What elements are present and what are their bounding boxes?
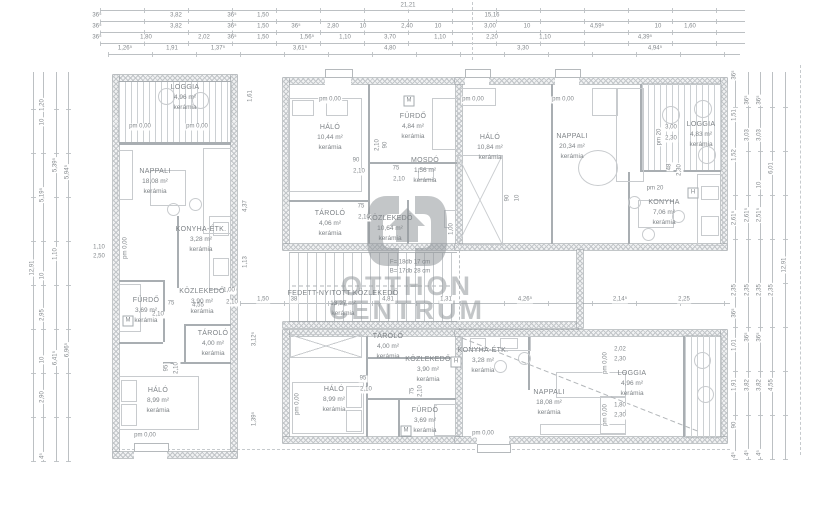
room-label: KONYHA-ÉTK.3,28 m²kerámia — [176, 226, 227, 253]
dimension-label: 3,00 — [664, 125, 678, 132]
dimension-label: 3,30 — [516, 46, 530, 53]
stair-note: B= 17db 28 cm — [389, 269, 432, 276]
partition — [119, 142, 231, 145]
room-label: TÁROLÓ4,00 m²kerámia — [198, 330, 229, 357]
top-dim-line — [108, 52, 740, 57]
dimension-label: 2,30 — [613, 357, 627, 364]
room-finish: kerámia — [687, 141, 716, 148]
room-finish: kerámia — [146, 407, 169, 414]
dimension-label: 2,50 — [92, 254, 106, 261]
room-area: 8,99 m² — [322, 396, 345, 403]
dimension-label: 75 — [357, 204, 366, 211]
room-name: FÜRDŐ — [412, 407, 438, 414]
dimension-label: 2,35 — [769, 283, 776, 297]
dimension-label: 2,35 — [732, 283, 739, 297]
room-finish: kerámia — [400, 133, 426, 140]
dimension-label: 4,94⁵ — [647, 46, 663, 53]
dimension-label: 2,10 — [392, 177, 406, 184]
dimension-label: 1,50 — [256, 13, 270, 20]
top-dim-line — [100, 19, 745, 24]
dimension-label: 2,90 — [40, 390, 47, 404]
level-label: pm 0,00 — [461, 97, 485, 104]
level-label: pm 0,00 — [133, 433, 157, 440]
dimension-label: 4,26⁵ — [517, 297, 533, 304]
room-finish: kerámia — [315, 230, 346, 237]
room-finish: kerámia — [405, 376, 451, 383]
sink — [701, 186, 719, 200]
level-label: pm 20 — [657, 128, 664, 147]
dimension-label: 6,41⁵ — [53, 350, 60, 366]
room-finish: kerámia — [412, 427, 438, 434]
level-label: pm 20 — [646, 186, 665, 193]
room-label: FÜRDŐ3,69 m²kerámia — [133, 297, 159, 324]
dimension-label: 36⁵ — [745, 94, 752, 105]
chair — [189, 198, 202, 211]
room-label: NAPPALI18,08 m²kerámia — [533, 389, 564, 416]
level-label: pm 0,00 — [471, 431, 495, 438]
dimension-label: 2,10 — [225, 300, 239, 307]
dimension-label: 1,39⁵ — [252, 411, 259, 427]
dimension-label: 2,20 — [485, 35, 499, 42]
room-area: 4,83 m² — [687, 131, 716, 138]
room-label: KÖZLEKEDŐ3,90 m²kerámia — [179, 288, 225, 315]
wall — [113, 75, 237, 81]
dimension-label: 1,80 — [613, 403, 627, 410]
room-label: KONYHA7,06 m²kerámia — [648, 199, 679, 226]
dimension-label: 4,80 — [383, 46, 397, 53]
room-area: 20,34 m² — [556, 143, 587, 150]
room-area: 4,00 m² — [198, 340, 229, 347]
dimension-label: 2,30 — [664, 136, 678, 143]
level-label: pm 0,00 — [318, 97, 342, 104]
dimension-label: 36⁵ — [226, 24, 237, 31]
bathtub — [432, 98, 458, 150]
right-dim-line — [733, 72, 738, 460]
dimension-label: 4⁵ — [40, 452, 47, 460]
dimension-label: 36⁵ — [226, 13, 237, 20]
room-area: 1,56 m² — [411, 167, 439, 174]
room-area: 8,99 m² — [146, 397, 169, 404]
pillow — [346, 410, 362, 432]
room-name: TÁROLÓ — [373, 333, 404, 340]
room-label: FEDETT-NYITOTT KÖZLEKEDŐ13,27 m²kerámia — [288, 290, 399, 317]
dimension-label: 90 — [505, 194, 512, 203]
room-finish: kerámia — [179, 308, 225, 315]
sofa — [556, 372, 626, 398]
partition — [119, 342, 163, 344]
chair — [662, 106, 680, 124]
room-area: 4,84 m² — [400, 123, 426, 130]
room-finish: kerámia — [533, 409, 564, 416]
room-name: KONYHA — [648, 199, 679, 206]
partition — [184, 324, 231, 326]
dimension-label: 2,51⁵ — [757, 207, 764, 223]
room-name: LOGGIA — [687, 121, 716, 128]
armchair — [117, 150, 133, 200]
room-finish: kerámia — [411, 177, 439, 184]
dimension-label: 1,56⁵ — [299, 35, 315, 42]
dimension-label: 1,80 — [139, 35, 153, 42]
dimension-label: 2,10 — [352, 169, 366, 176]
dimension-label: 2,61⁵ — [745, 207, 752, 223]
dimension-label: 1,60 — [683, 24, 697, 31]
dimension-label: 10 — [523, 24, 532, 31]
dimension-label: 2,30 — [677, 163, 684, 177]
dimension-label: 10 — [40, 118, 47, 127]
room-name: NAPPALI — [533, 389, 564, 396]
room-label: HÁLÓ8,99 m²kerámia — [322, 386, 345, 413]
dimension-label: 36⁵ — [91, 13, 102, 20]
pillow — [121, 380, 137, 402]
dimension-label: 4⁵ — [745, 449, 752, 457]
level-label: pm 0,00 — [603, 403, 610, 427]
dimension-label: 4⁵ — [732, 451, 739, 459]
dimension-label: 2,95 — [40, 308, 47, 322]
dimension-label: 3,82 — [745, 378, 752, 392]
partition — [683, 336, 685, 437]
dimension-label: 10 — [40, 272, 47, 281]
wall — [283, 330, 289, 443]
room-area: 10,84 m² — [477, 144, 503, 151]
room-label: TÁROLÓ4,00 m²kerámia — [373, 333, 404, 360]
door-opening — [325, 77, 351, 85]
room-name: HÁLÓ — [317, 124, 343, 131]
room-finish: kerámia — [198, 350, 229, 357]
dimension-label: 2,25 — [677, 297, 691, 304]
room-area: 3,90 m² — [405, 366, 451, 373]
dimension-label: 21,21 — [399, 3, 416, 10]
appliance-symbol: H — [688, 188, 699, 199]
dimension-label: 1,20 — [40, 98, 47, 112]
dimension-label: 1,50 — [256, 35, 270, 42]
dimension-label: 1,10 — [53, 247, 60, 261]
floor-plan: OTTHON CENTRUM 21,2136⁵3,8236⁵1,5015,163… — [0, 0, 813, 512]
dimension-label: 3,82 — [757, 378, 764, 392]
room-label: HÁLÓ8,99 m²kerámia — [146, 387, 169, 414]
dimension-label: 10 — [515, 194, 522, 203]
room-label: LOGGIA4,83 m²kerámia — [687, 121, 716, 148]
room-finish: kerámia — [171, 104, 200, 111]
room-area: 3,28 m² — [176, 236, 227, 243]
dimension-label: 1,50 — [256, 24, 270, 31]
chair — [694, 352, 711, 369]
dimension-label: 36⁵ — [732, 69, 739, 80]
dimension-label: 1,91 — [165, 46, 179, 53]
dimension-label: 4,39⁵ — [637, 35, 653, 42]
dimension-label: 3,82 — [169, 13, 183, 20]
room-area: 4,96 m² — [171, 94, 200, 101]
dimension-label: 36⁵ — [91, 24, 102, 31]
dimension-label: 4⁵ — [757, 449, 764, 457]
washing-machine-symbol: M — [404, 96, 415, 107]
dimension-label: 2,61⁵ — [732, 210, 739, 226]
dimension-label: 6,96⁵ — [65, 342, 72, 358]
dimension-label: 2,10 — [359, 387, 373, 394]
right-dim-line — [770, 72, 775, 460]
dimension-label: 15,16 — [483, 13, 500, 20]
dimension-label: 1,37⁵ — [210, 46, 226, 53]
dimension-label: 2,10 — [418, 384, 425, 398]
dimension-label: 1,10 — [538, 35, 552, 42]
wall — [113, 452, 237, 458]
chair — [697, 386, 714, 403]
door-leaf — [134, 443, 169, 452]
room-finish: kerámia — [367, 235, 413, 242]
room-area: 4,00 m² — [373, 343, 404, 350]
room-label: HÁLÓ10,44 m²kerámia — [317, 124, 343, 151]
dimension-label: 12,91 — [782, 256, 789, 273]
level-label: pm 0,00 — [128, 124, 152, 131]
dimension-label: 2,10 — [174, 361, 181, 375]
chair — [518, 352, 531, 365]
top-dim-line — [100, 8, 745, 13]
left-dim-line — [54, 72, 59, 462]
door-leaf — [477, 444, 511, 453]
dimension-label: 10 — [359, 24, 368, 31]
chair — [694, 100, 712, 118]
dimension-label: 1,91 — [732, 378, 739, 392]
room-label: MOSDÓ1,56 m²kerámia — [411, 157, 439, 184]
dimension-label: 2,35 — [745, 283, 752, 297]
dimension-label: 3,61⁵ — [292, 46, 308, 53]
room-label: TÁROLÓ4,06 m²kerámia — [315, 210, 346, 237]
dimension-label: 1,13 — [243, 255, 250, 269]
room-name: TÁROLÓ — [198, 330, 229, 337]
room-name: MOSDÓ — [411, 157, 439, 164]
dimension-label: 1,10 — [433, 35, 447, 42]
room-area: 18,08 m² — [533, 399, 564, 406]
room-finish: kerámia — [477, 154, 503, 161]
dimension-label: 1,10 — [92, 245, 106, 252]
dimension-label: 75 — [410, 387, 417, 396]
partition — [119, 280, 163, 282]
room-label: FÜRDŐ3,69 m²kerámia — [412, 407, 438, 434]
partition — [366, 398, 456, 400]
room-name: HÁLÓ — [477, 134, 503, 141]
wall — [283, 437, 462, 443]
room-name: KONYHA-ÉTK. — [458, 347, 509, 354]
dimension-label: 75 — [392, 166, 401, 173]
dimension-label: 36⁵ — [290, 24, 301, 31]
room-name: KÖZLEKEDŐ — [405, 356, 451, 363]
room-name: KÖZLEKEDŐ — [367, 215, 413, 222]
axis-line — [472, 2, 473, 60]
washing-machine-symbol: M — [401, 426, 412, 437]
dimension-label: 2,80 — [326, 24, 340, 31]
dimension-label: 10 — [757, 181, 764, 190]
dimension-label: 1,26⁵ — [117, 46, 133, 53]
room-label: NAPPALI18,08 m²kerámia — [139, 168, 170, 195]
dimension-label: 1,01 — [732, 338, 739, 352]
room-area: 3,69 m² — [412, 417, 438, 424]
dimension-label: 1,50 — [256, 297, 270, 304]
dimension-label: 95 — [164, 364, 171, 373]
dimension-label: 2,40 — [400, 24, 414, 31]
dimension-label: 1,31 — [439, 297, 453, 304]
room-finish: kerámia — [176, 246, 227, 253]
room-area: 13,27 m² — [288, 300, 399, 307]
room-finish: kerámia — [322, 406, 345, 413]
dimension-label: 2,02 — [613, 347, 627, 354]
canopy-dashed-line — [112, 449, 730, 450]
dimension-label: 36⁵ — [732, 307, 739, 318]
sofa — [592, 88, 618, 116]
dimension-label: 5,19⁵ — [40, 187, 47, 203]
level-label: pm 0,00 — [123, 236, 130, 260]
room-area: 3,90 m² — [179, 298, 225, 305]
dimension-label: 1,52 — [732, 148, 739, 162]
wall — [721, 330, 727, 443]
room-name: LOGGIA — [618, 370, 647, 377]
wall — [577, 250, 583, 328]
dimension-label: 1,51 — [732, 108, 739, 122]
dimension-label: 90 — [352, 158, 361, 165]
dimension-label: 1,61 — [248, 89, 255, 103]
room-name: FÜRDŐ — [133, 297, 159, 304]
dimension-label: 90 — [383, 141, 390, 150]
level-label: pm 0,00 — [551, 97, 575, 104]
pillow — [121, 404, 137, 426]
room-finish: kerámia — [133, 317, 159, 324]
room-name: NAPPALI — [556, 133, 587, 140]
door-opening — [555, 77, 579, 85]
dimension-label: 6,01 — [769, 161, 776, 175]
room-area: 3,69 m² — [133, 307, 159, 314]
door-leaf — [555, 69, 581, 78]
dimension-label: 3,03 — [757, 128, 764, 142]
dimension-label: 4,55 — [769, 378, 776, 392]
room-name: FEDETT-NYITOTT KÖZLEKEDŐ — [288, 290, 399, 297]
chair — [628, 196, 641, 209]
room-label: NAPPALI20,34 m²kerámia — [556, 133, 587, 160]
room-label: LOGGIA4,96 m²kerámia — [171, 84, 200, 111]
dimension-label: 90 — [732, 421, 739, 430]
dimension-label: 36⁵ — [91, 35, 102, 42]
dimension-label: 10 — [434, 24, 443, 31]
dimension-label: 2,10 — [375, 138, 382, 152]
sofa — [616, 88, 644, 182]
room-finish: kerámia — [373, 353, 404, 360]
room-area: 7,06 m² — [648, 209, 679, 216]
room-name: LOGGIA — [171, 84, 200, 91]
room-label: KÖZLEKEDŐ10,64 m²kerámia — [367, 215, 413, 242]
room-name: KONYHA-ÉTK. — [176, 226, 227, 233]
room-label: FÜRDŐ4,84 m²kerámia — [400, 113, 426, 140]
room-finish: kerámia — [458, 367, 509, 374]
room-area: 18,08 m² — [139, 178, 170, 185]
dimension-label: 3,70 — [383, 35, 397, 42]
room-area: 10,64 m² — [367, 225, 413, 232]
dimension-label: 1,10 — [338, 35, 352, 42]
door-opening — [134, 451, 167, 459]
dimension-label: 4,59⁵ — [589, 24, 605, 31]
wall — [283, 78, 462, 84]
dimension-label: 48 — [667, 163, 674, 172]
room-name: HÁLÓ — [322, 386, 345, 393]
dimension-label: 3,00 — [483, 24, 497, 31]
room-finish: kerámia — [618, 390, 647, 397]
room-finish: kerámia — [139, 188, 170, 195]
room-label: KÖZLEKEDŐ3,90 m²kerámia — [405, 356, 451, 383]
chair — [642, 228, 655, 241]
dimension-label: 2,35 — [757, 283, 764, 297]
dimension-label: 10 — [654, 24, 663, 31]
room-label: KONYHA-ÉTK.3,28 m²kerámia — [458, 347, 509, 374]
room-label: HÁLÓ10,84 m²kerámia — [477, 134, 503, 161]
level-label: pm 0,00 — [295, 392, 302, 416]
left-dim-line — [66, 72, 71, 462]
axis-line — [800, 65, 801, 455]
dimension-label: 36⁵ — [757, 331, 764, 342]
chair — [167, 203, 180, 216]
room-label: LOGGIA4,96 m²kerámia — [618, 370, 647, 397]
room-name: FÜRDŐ — [400, 113, 426, 120]
dimension-label: 10 — [40, 356, 47, 365]
door-leaf — [465, 69, 491, 78]
stove — [701, 216, 719, 236]
dimension-label: 4,37 — [243, 199, 250, 213]
room-area: 4,96 m² — [618, 380, 647, 387]
dimension-label: 2,02 — [197, 35, 211, 42]
room-area: 3,28 m² — [458, 357, 509, 364]
wardrobe — [290, 334, 362, 358]
dimension-label: 1,00 — [449, 222, 456, 236]
dimension-label: 95 — [359, 376, 368, 383]
room-name: TÁROLÓ — [315, 210, 346, 217]
door-opening — [465, 77, 489, 85]
dimension-label: 12,91 — [30, 259, 37, 276]
dimension-label: 3,82 — [169, 24, 183, 31]
stair-note: F= 18db 17 cm — [389, 260, 431, 267]
room-name: HÁLÓ — [146, 387, 169, 394]
room-finish: kerámia — [648, 219, 679, 226]
room-name: NAPPALI — [139, 168, 170, 175]
room-finish: kerámia — [556, 153, 587, 160]
room-finish: kerámia — [317, 144, 343, 151]
room-area: 10,44 m² — [317, 134, 343, 141]
room-area: 4,06 m² — [315, 220, 346, 227]
sideboard — [540, 424, 626, 435]
level-label: pm 0,00 — [185, 124, 209, 131]
dimension-label: 3,12⁵ — [252, 331, 259, 347]
pillow — [292, 100, 314, 116]
stove — [213, 258, 229, 276]
dimension-label: 2,30 — [613, 413, 627, 420]
dimension-label: 36⁵ — [745, 331, 752, 342]
dimension-label: 36⁵ — [757, 94, 764, 105]
chair — [698, 146, 716, 164]
dimension-label: 5,94⁵ — [65, 164, 72, 180]
door-leaf — [325, 69, 353, 78]
dimension-label: 3,03 — [745, 128, 752, 142]
dimension-label: 75 — [167, 301, 176, 308]
partition — [184, 324, 186, 362]
room-name: KÖZLEKEDŐ — [179, 288, 225, 295]
dimension-label: 36⁵ — [226, 35, 237, 42]
partition — [628, 172, 630, 244]
partition — [551, 84, 553, 244]
room-finish: kerámia — [288, 310, 399, 317]
dimension-label: 5,39⁵ — [53, 157, 60, 173]
level-label: pm 0,00 — [603, 351, 610, 375]
dimension-label: 2,14⁵ — [612, 297, 628, 304]
